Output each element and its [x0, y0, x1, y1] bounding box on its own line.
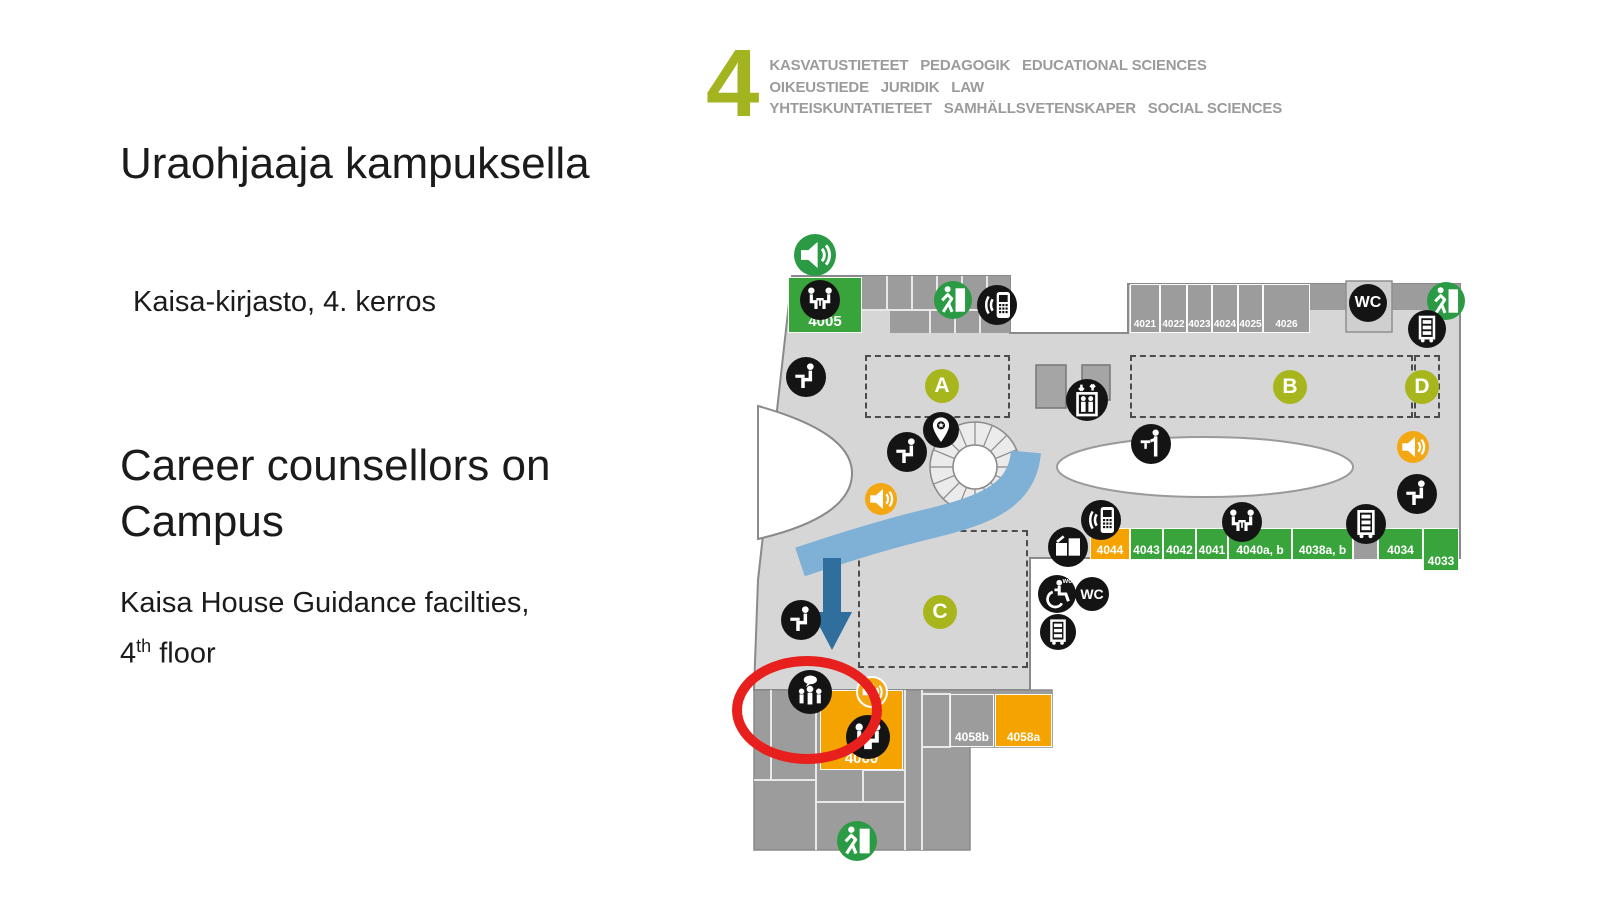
emergency-exit-icon	[934, 281, 972, 319]
quiet-seat-icon	[786, 357, 826, 397]
audio-guide-icon-glyph	[794, 234, 836, 276]
quiet-seat-icon-glyph	[887, 432, 927, 472]
route-overlay	[0, 0, 1600, 900]
quiet-seat-icon-glyph	[781, 600, 821, 640]
audio-guide-icon	[794, 234, 836, 276]
slide: 4 KASVATUSTIETEET PEDAGOGIK EDUCATIONAL …	[0, 0, 1600, 900]
wc-icon: WC	[1349, 284, 1387, 322]
emergency-exit-icon-glyph	[934, 281, 972, 319]
audio-zone-icon-glyph	[1397, 431, 1429, 463]
quiet-seat-icon	[887, 432, 927, 472]
quiet-seat-icon-glyph	[1397, 474, 1437, 514]
wc-label: WC	[1075, 577, 1109, 611]
elevator-icon	[1066, 379, 1108, 421]
quiet-seat-icon-glyph	[786, 357, 826, 397]
phone-zone-icon	[977, 285, 1017, 325]
info-pin-icon	[923, 412, 959, 448]
info-pin-icon-glyph	[923, 412, 959, 448]
copier-icon	[1048, 527, 1088, 567]
wc-label: WC	[1349, 284, 1387, 322]
book-trolley-icon-glyph	[1408, 310, 1446, 348]
book-trolley-icon-glyph	[1346, 504, 1386, 544]
book-trolley-icon-glyph	[1040, 614, 1076, 650]
book-trolley-icon	[1040, 614, 1076, 650]
book-trolley-icon	[1408, 310, 1446, 348]
book-trolley-icon	[1346, 504, 1386, 544]
group-room-icon	[1222, 502, 1262, 542]
quiet-seat-icon	[1397, 474, 1437, 514]
emergency-exit-icon-glyph	[837, 821, 877, 861]
floor-map: 4005402140224023402440254026404440434042…	[0, 0, 1600, 900]
copier-icon-glyph	[1048, 527, 1088, 567]
elevator-icon-glyph	[1066, 379, 1108, 421]
accessible-wc-icon: wc	[1038, 575, 1076, 613]
highlight-ellipse	[732, 656, 882, 764]
audio-zone-icon	[865, 483, 897, 515]
group-room-icon	[800, 280, 840, 320]
standing-desk-icon	[1131, 424, 1171, 464]
wc-icon: WC	[1075, 577, 1109, 611]
phone-zone-icon-glyph	[977, 285, 1017, 325]
group-room-icon-glyph	[1222, 502, 1262, 542]
standing-desk-icon-glyph	[1131, 424, 1171, 464]
emergency-exit-icon	[837, 821, 877, 861]
quiet-seat-icon	[781, 600, 821, 640]
audio-zone-icon	[1397, 431, 1429, 463]
wc-small-label: wc	[1063, 578, 1072, 585]
audio-zone-icon-glyph	[865, 483, 897, 515]
group-room-icon-glyph	[800, 280, 840, 320]
